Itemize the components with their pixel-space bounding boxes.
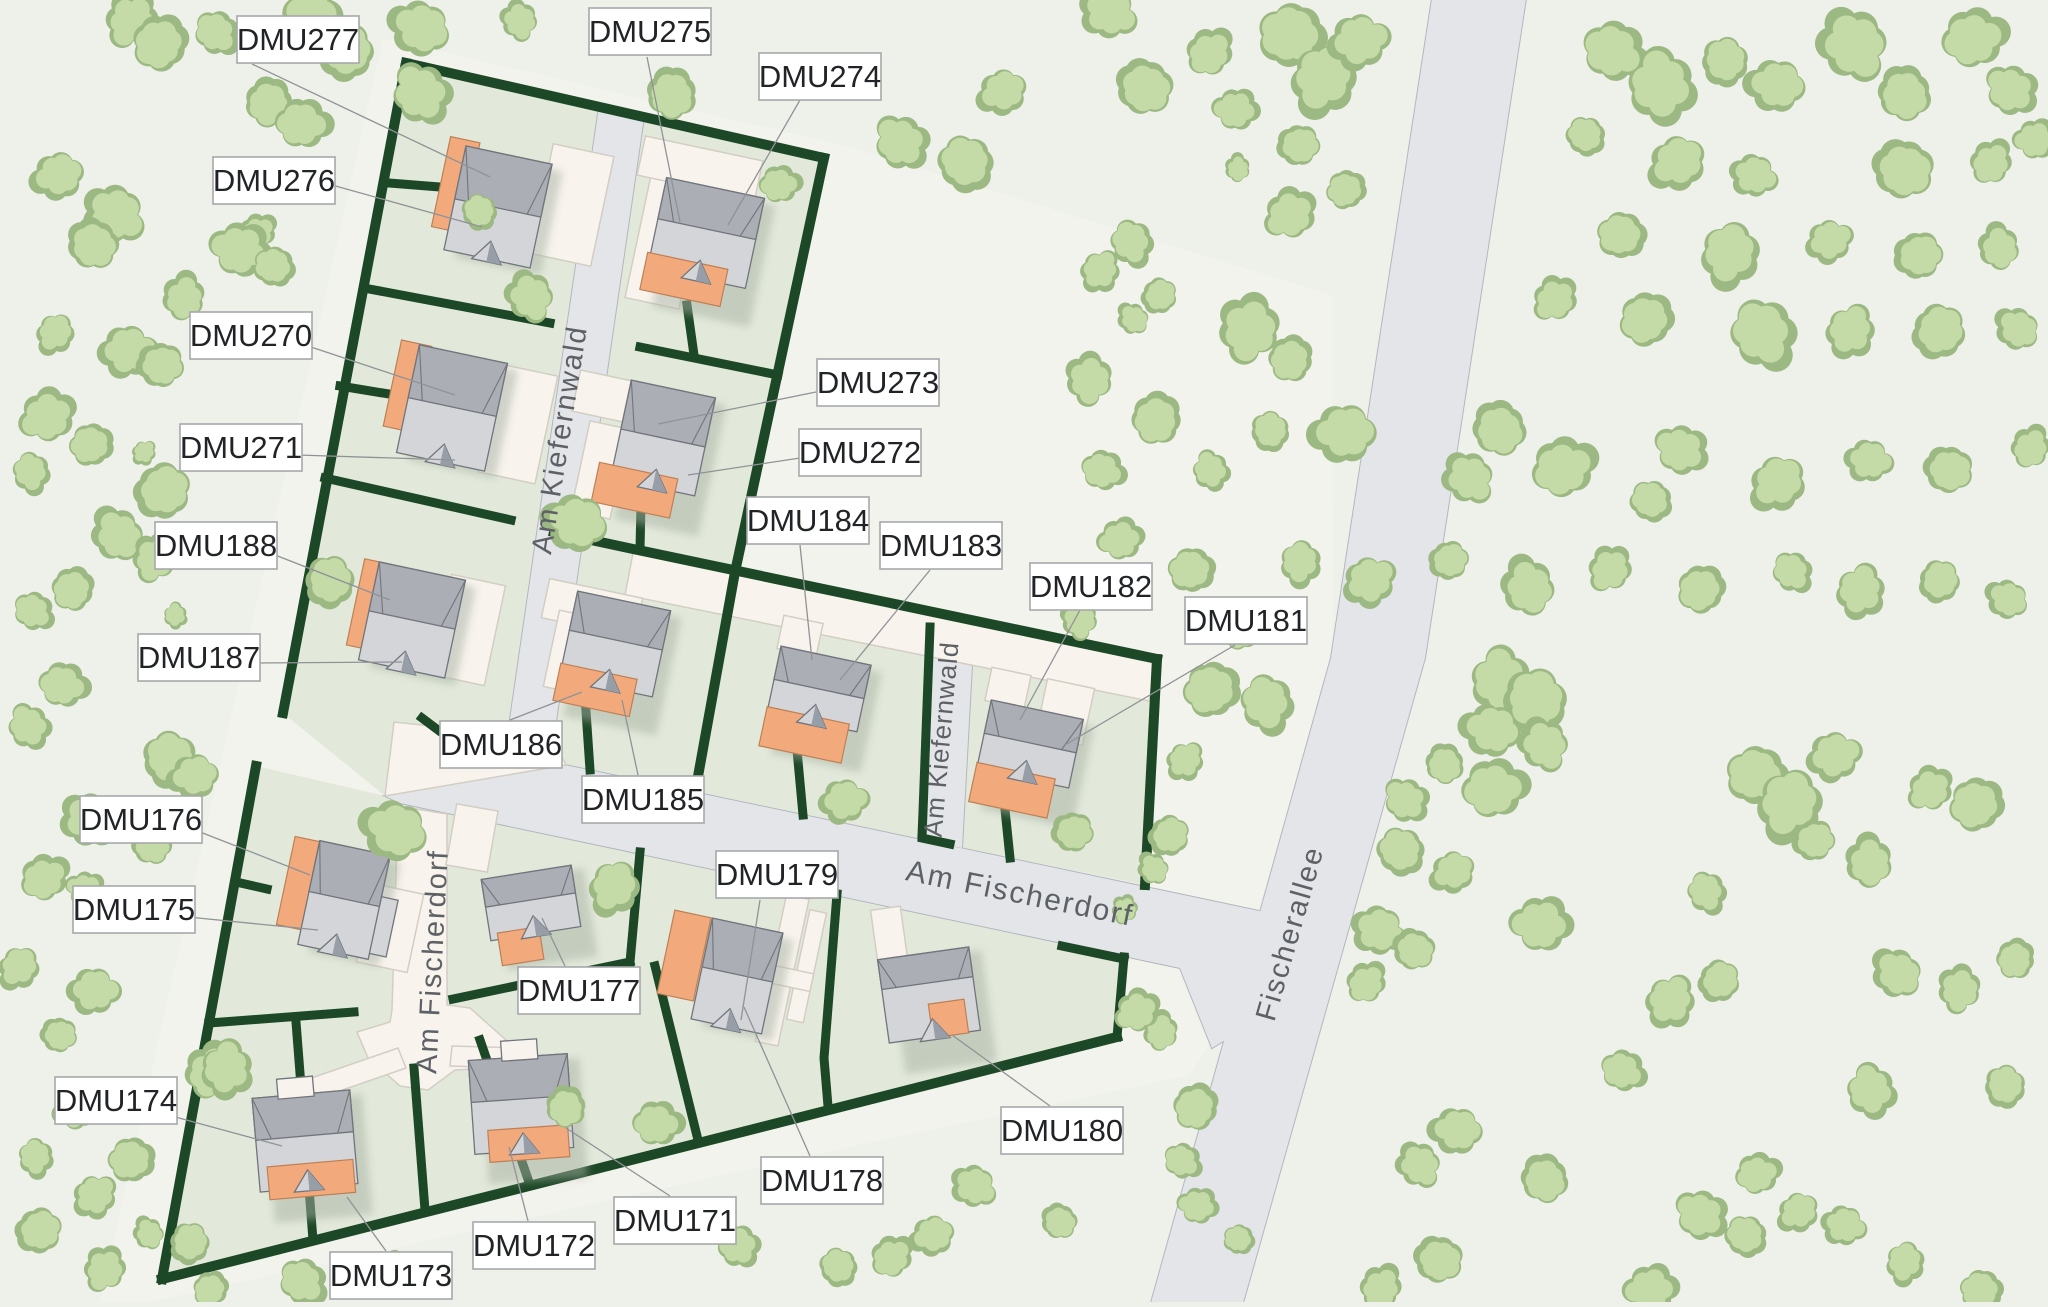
svg-text:DMU272: DMU272 (799, 435, 921, 470)
svg-text:DMU174: DMU174 (55, 1083, 177, 1118)
svg-text:DMU275: DMU275 (589, 14, 711, 49)
svg-text:DMU178: DMU178 (761, 1163, 883, 1198)
svg-text:DMU271: DMU271 (180, 430, 302, 465)
svg-text:DMU179: DMU179 (716, 857, 838, 892)
svg-text:DMU184: DMU184 (747, 503, 869, 538)
svg-text:DMU273: DMU273 (817, 365, 939, 400)
svg-text:DMU172: DMU172 (473, 1228, 595, 1263)
svg-text:DMU182: DMU182 (1030, 569, 1152, 604)
svg-text:DMU177: DMU177 (518, 973, 640, 1008)
svg-text:DMU274: DMU274 (759, 59, 881, 94)
svg-text:DMU176: DMU176 (80, 802, 202, 837)
svg-text:DMU276: DMU276 (213, 163, 335, 198)
svg-text:DMU173: DMU173 (330, 1258, 452, 1293)
svg-text:DMU175: DMU175 (73, 892, 195, 927)
svg-text:DMU188: DMU188 (155, 528, 277, 563)
svg-text:DMU186: DMU186 (440, 727, 562, 762)
svg-text:DMU181: DMU181 (1185, 603, 1307, 638)
svg-text:DMU185: DMU185 (582, 782, 704, 817)
svg-text:DMU180: DMU180 (1001, 1113, 1123, 1148)
svg-text:DMU277: DMU277 (237, 22, 359, 57)
svg-text:DMU270: DMU270 (190, 318, 312, 353)
svg-text:DMU187: DMU187 (138, 640, 260, 675)
svg-text:DMU183: DMU183 (880, 528, 1002, 563)
svg-text:DMU171: DMU171 (614, 1203, 736, 1238)
